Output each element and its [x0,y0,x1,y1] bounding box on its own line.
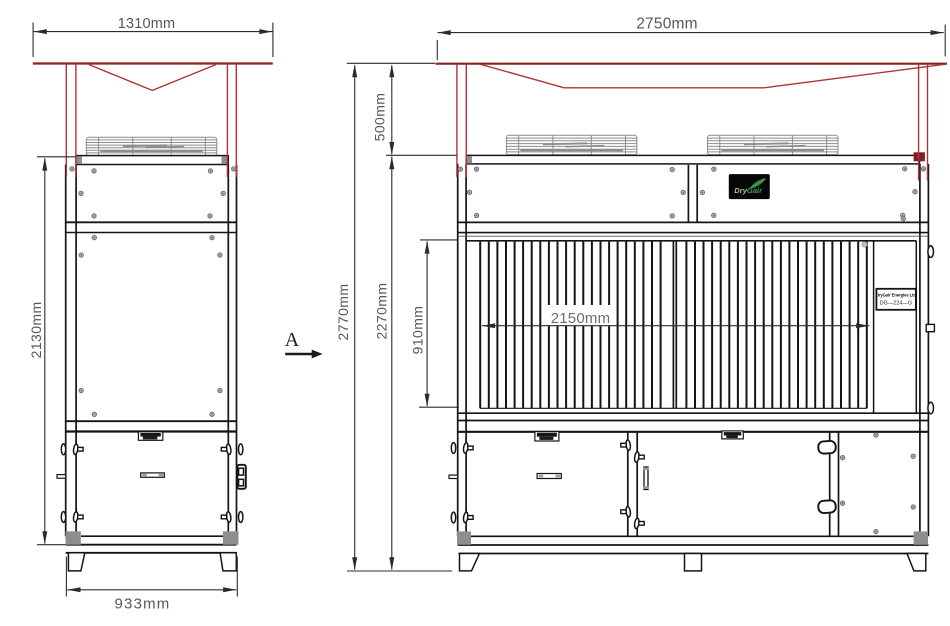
svg-text:DryGair: DryGair [734,186,763,195]
svg-text:2750mm: 2750mm [636,16,698,33]
svg-text:DryGair Energies Ltd: DryGair Energies Ltd [876,292,916,297]
svg-text:2270mm: 2270mm [374,283,390,340]
svg-text:2770mm: 2770mm [335,284,351,341]
svg-text:DG—224—G: DG—224—G [880,301,912,307]
svg-text:2150mm: 2150mm [551,310,611,327]
svg-text:A: A [285,329,300,351]
svg-text:500mm: 500mm [371,93,387,142]
svg-text:910mm: 910mm [410,306,426,355]
svg-text:1310mm: 1310mm [118,16,176,32]
svg-text:933mm: 933mm [114,596,170,613]
svg-text:2130mm: 2130mm [28,301,44,358]
